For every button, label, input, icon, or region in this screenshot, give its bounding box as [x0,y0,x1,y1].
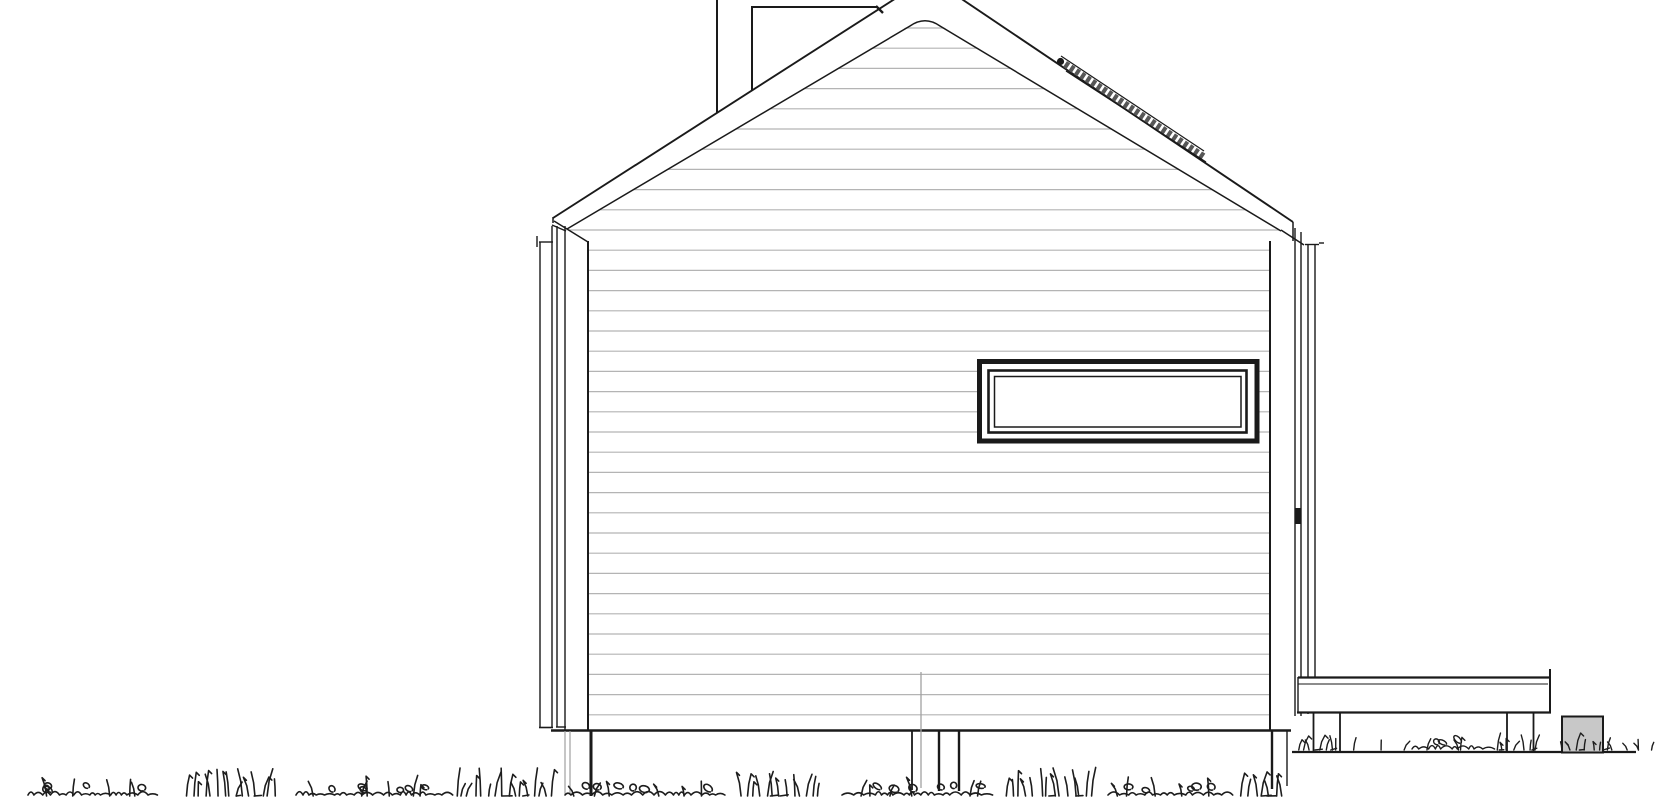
grass-loop [1124,784,1133,790]
grass-blade [541,783,546,796]
grass-blade [1497,733,1500,750]
grass-blade [756,776,760,796]
grass-blade [1086,771,1089,796]
grass-blade [226,772,229,796]
grass-blade [217,769,218,796]
grass-ground-tick [236,795,240,796]
grass-ground-tick [1262,795,1272,796]
grass-loop [138,785,146,791]
grass-blade [1652,742,1654,750]
grass-loop [1142,788,1149,793]
grass-blade [1012,780,1013,796]
grass-blade [1530,740,1531,750]
right-trim-latch-mark [1296,508,1301,524]
grass-blade [489,784,491,796]
grass-blade [1050,774,1055,796]
grass-blade [806,774,812,796]
grass-blade [476,775,480,796]
grass-loop [630,784,636,791]
grass-blade [1241,773,1248,796]
grass-blade [1404,741,1410,750]
grass-ground-tick [1315,749,1322,750]
grass-blade [551,770,557,796]
grass-ground-tick [770,795,777,796]
grass-blade [186,775,192,796]
grass-loop [329,786,335,792]
grass-blade [1514,741,1520,750]
grass-loop [951,782,957,788]
grass-blade [243,777,248,796]
grass-loop [582,783,589,790]
grass-blade [461,784,465,796]
grass-blade [511,782,516,796]
roof-edge-right-outer [929,0,1293,222]
grass-blade [523,780,528,796]
grass-blade [223,771,226,796]
grass-blade [753,782,757,796]
grass-loop [976,784,985,789]
roof-edge-inner-rake [567,21,1281,231]
grass-blade [736,772,741,796]
left-trim-diag-cap [552,225,566,231]
grass-blade [1623,743,1627,750]
window-outer-frame [980,362,1258,442]
grass-blade [388,782,389,796]
grass-blade [817,783,819,796]
left-corner-trim [537,225,566,730]
grass-blade [1330,736,1333,750]
grass-blade [1046,777,1047,796]
grass-blade [131,782,134,796]
grass-blade [1020,779,1025,796]
grass-blade [274,779,275,796]
deck-slab [1298,678,1551,712]
grass-blade [535,768,538,796]
grass-blade [267,769,273,796]
grass-blade [785,780,787,796]
grass-scribble-baseline [1412,746,1495,749]
grass-blade [1041,769,1043,796]
grass-blade [495,772,501,796]
grass-blade [813,776,816,796]
grass-blade [682,786,685,796]
grass-loop [704,784,712,792]
grass-blade [1053,768,1059,796]
roof-rail-top-line [1061,56,1204,151]
grass-blade [251,772,255,796]
right-corner-trim [1295,228,1324,716]
grass-blade [1521,735,1524,750]
grass-scribble-baseline [296,792,453,795]
grass-blade [1030,778,1032,796]
grass-blade [501,768,502,796]
wall-outline [551,241,1291,731]
grass-blade [1111,783,1117,796]
elevation-drawing [0,0,1670,800]
grass-blade [1073,770,1077,796]
foundation-posts [565,672,1287,796]
grass-loop [83,783,89,789]
grass-blade [238,769,243,796]
grass-blade [1326,740,1329,750]
grass-blade [1065,777,1068,796]
grass-blade [130,779,131,796]
grass-scribble-baseline [28,792,157,795]
grass-blade [479,768,480,796]
grass-blade [1127,777,1129,796]
left-eave-soffit [554,221,588,242]
grass-loop [405,786,412,792]
grass-blade [1018,771,1022,796]
elevation-canvas [0,0,1670,800]
grass-loop [873,783,881,790]
grass-blade [420,785,424,796]
grass-blade [1265,781,1269,796]
grass-blade [794,775,795,796]
grass-blade [1253,775,1257,796]
grass-blade [1305,740,1309,750]
grass-blade [1461,737,1465,750]
grass-lower-band [28,767,1282,796]
grass-blade [1248,779,1251,796]
grass-loop [397,787,404,792]
grass-blade [1500,742,1503,750]
grass-blade [198,782,201,796]
grass-ground-tick [1532,748,1537,750]
ribbon-window [980,362,1258,442]
grass-blade [1006,778,1012,796]
grass-blade [457,768,460,796]
roof-rail-bottom-line [1066,71,1206,162]
grass-blade [1354,738,1356,750]
grass-ground-tick [254,795,261,796]
grass-blade [776,778,779,796]
grass-blade [1208,778,1211,796]
grass-blade [466,783,472,796]
roof [553,0,1304,245]
grass-ground-tick [523,795,529,796]
grass-blade [1092,767,1096,796]
grass-loop [614,783,623,789]
grass-blade [519,782,523,796]
roof-rail-end-cap [1057,58,1064,65]
